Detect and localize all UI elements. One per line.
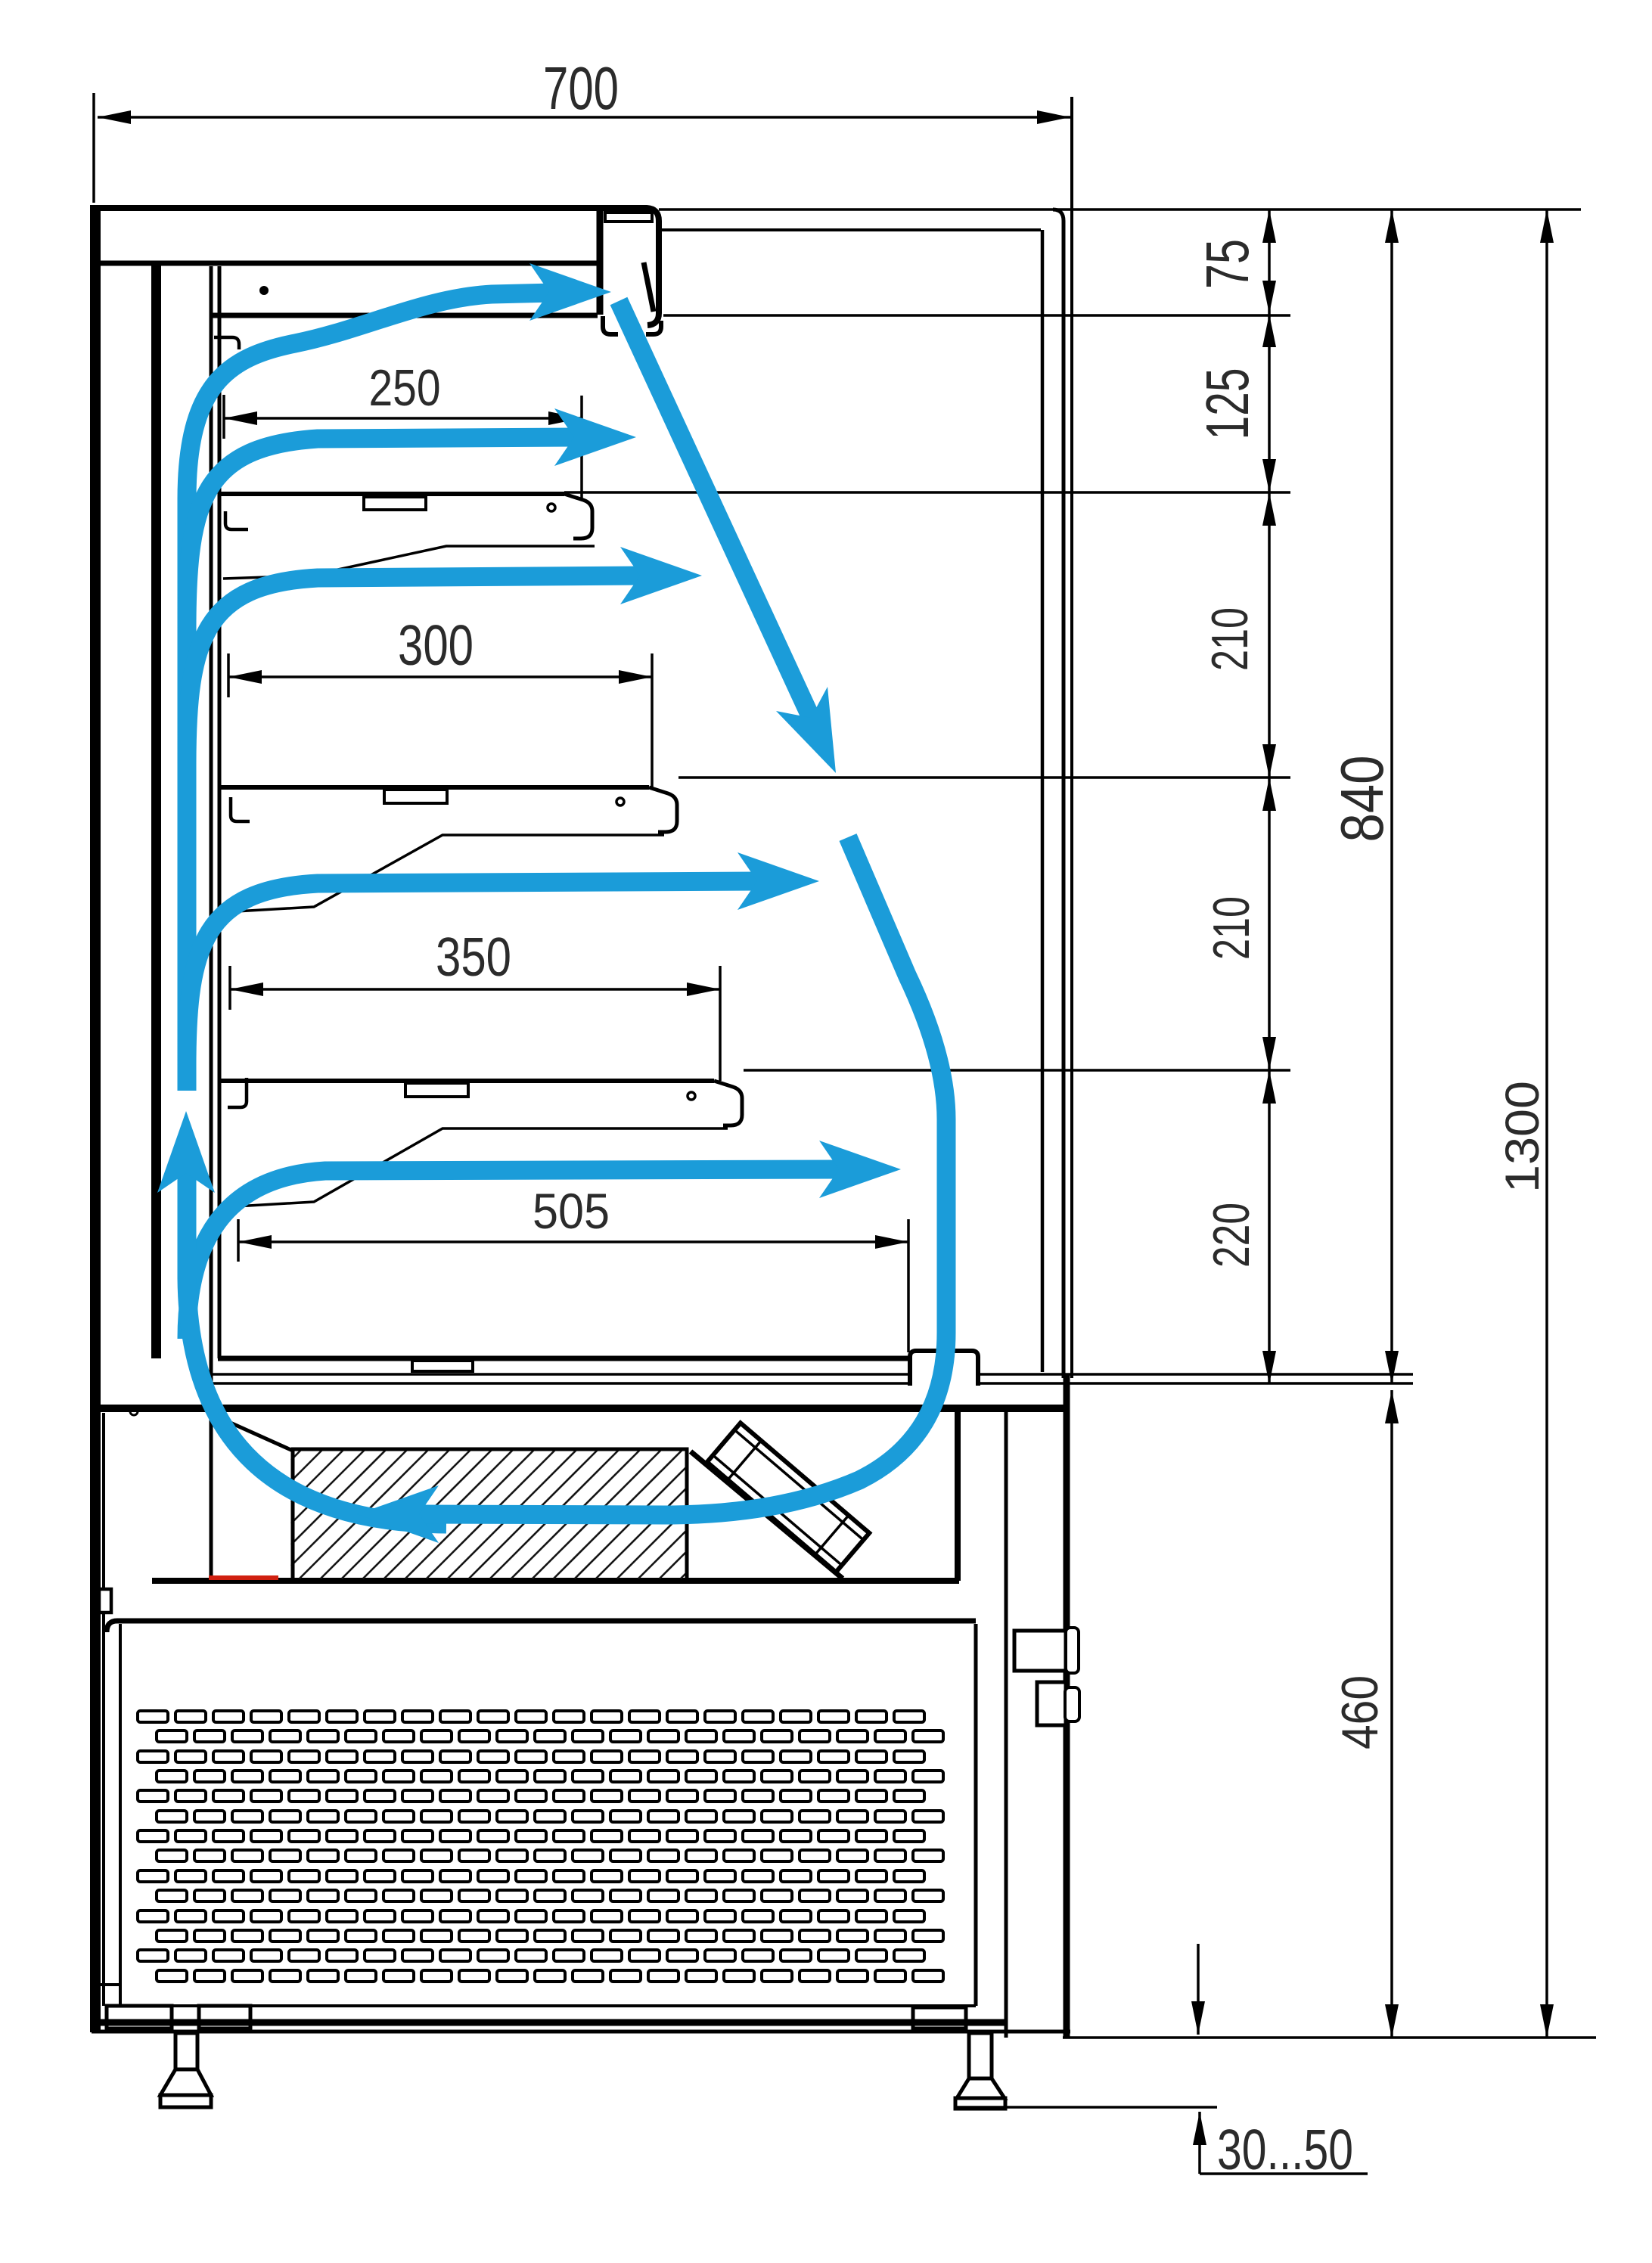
svg-text:840: 840 [1328, 756, 1396, 843]
svg-text:505: 505 [533, 1183, 610, 1239]
svg-text:1300: 1300 [1496, 1081, 1549, 1193]
svg-text:75: 75 [1194, 239, 1261, 289]
svg-text:220: 220 [1203, 1203, 1260, 1268]
svg-text:125: 125 [1194, 368, 1261, 440]
svg-text:700: 700 [543, 54, 619, 122]
svg-text:350: 350 [436, 927, 511, 988]
svg-text:210: 210 [1201, 607, 1259, 671]
svg-text:460: 460 [1331, 1675, 1389, 1749]
svg-text:300: 300 [398, 613, 474, 677]
svg-text:30...50: 30...50 [1217, 2118, 1353, 2181]
svg-text:210: 210 [1203, 896, 1260, 960]
svg-text:250: 250 [369, 359, 441, 417]
